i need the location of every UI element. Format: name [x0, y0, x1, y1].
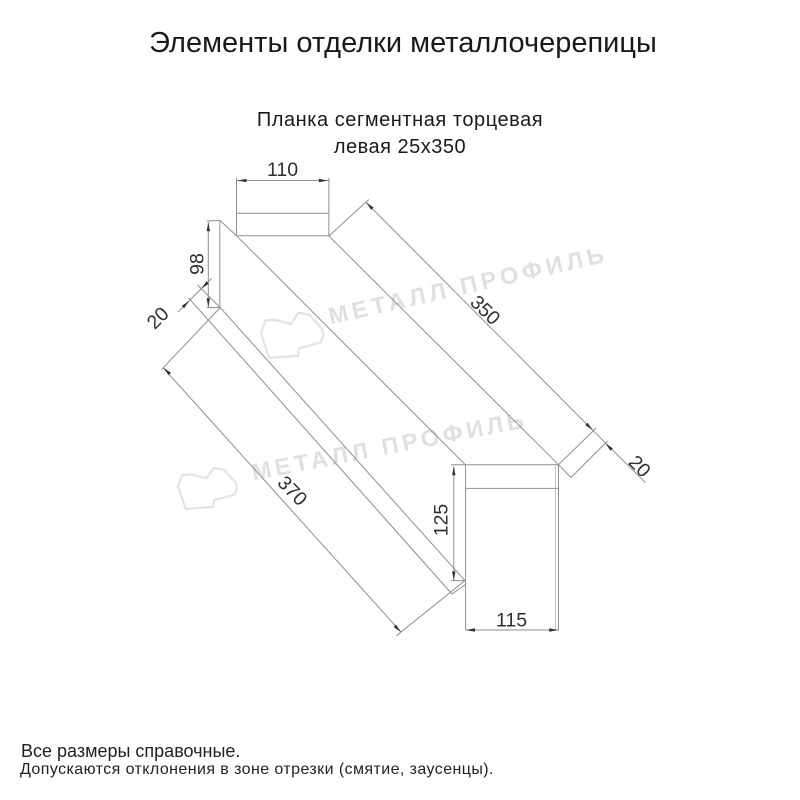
svg-text:20: 20 — [143, 303, 174, 334]
svg-text:МЕТАЛЛ ПРОФИЛЬ: МЕТАЛЛ ПРОФИЛЬ — [326, 241, 611, 330]
svg-text:20: 20 — [624, 451, 655, 482]
svg-text:115: 115 — [496, 609, 527, 631]
svg-text:125: 125 — [430, 504, 452, 537]
svg-text:98: 98 — [187, 253, 209, 275]
svg-text:110: 110 — [267, 159, 298, 181]
